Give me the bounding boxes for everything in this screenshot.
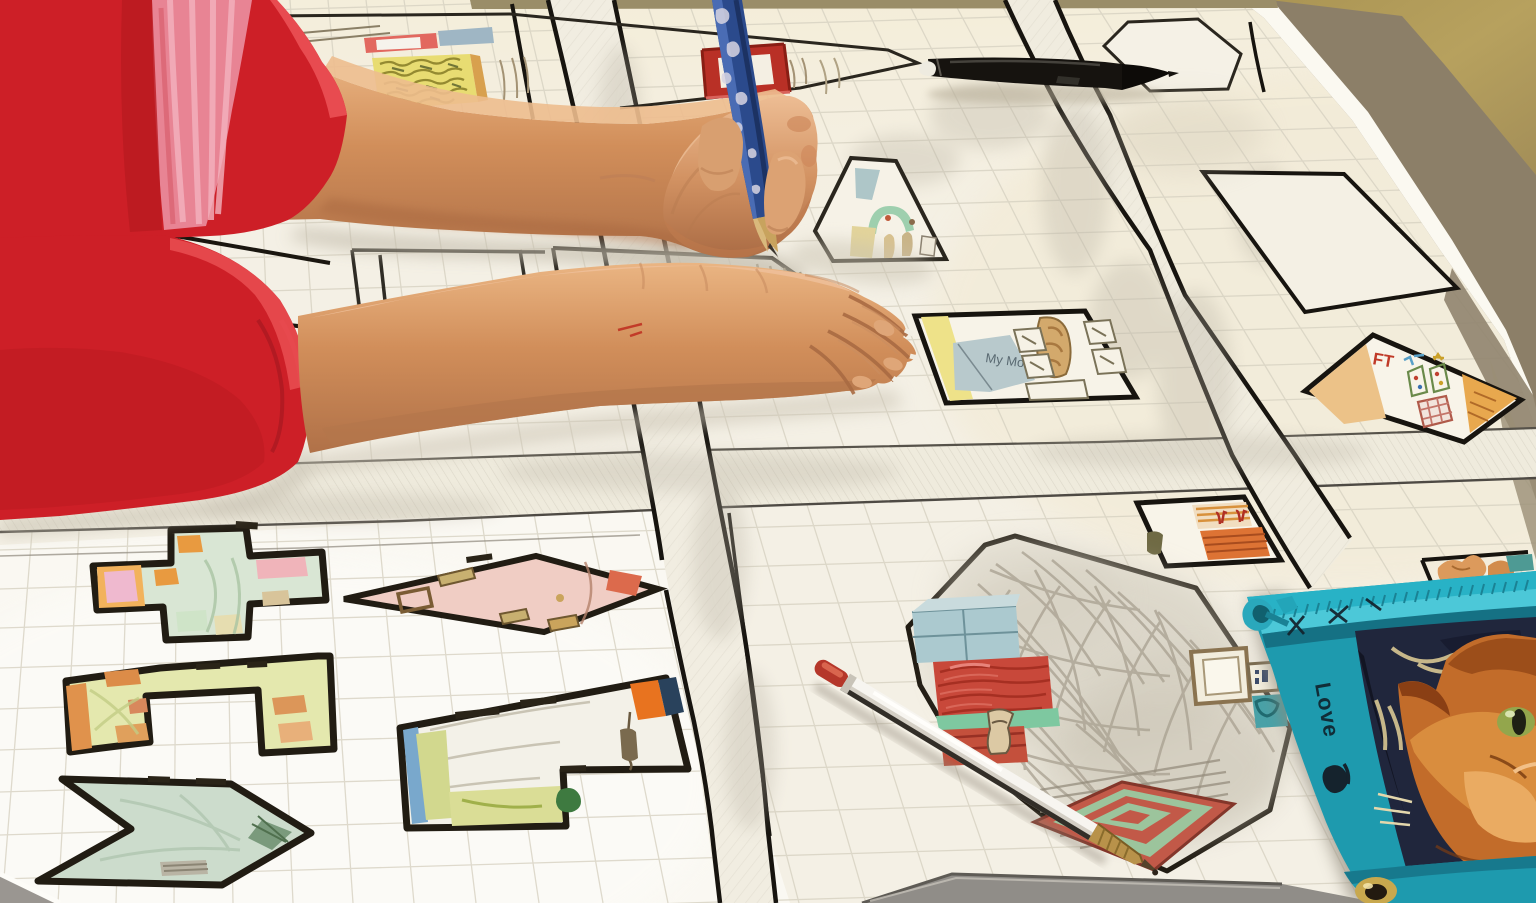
- svg-text:FT: FT: [1371, 349, 1395, 371]
